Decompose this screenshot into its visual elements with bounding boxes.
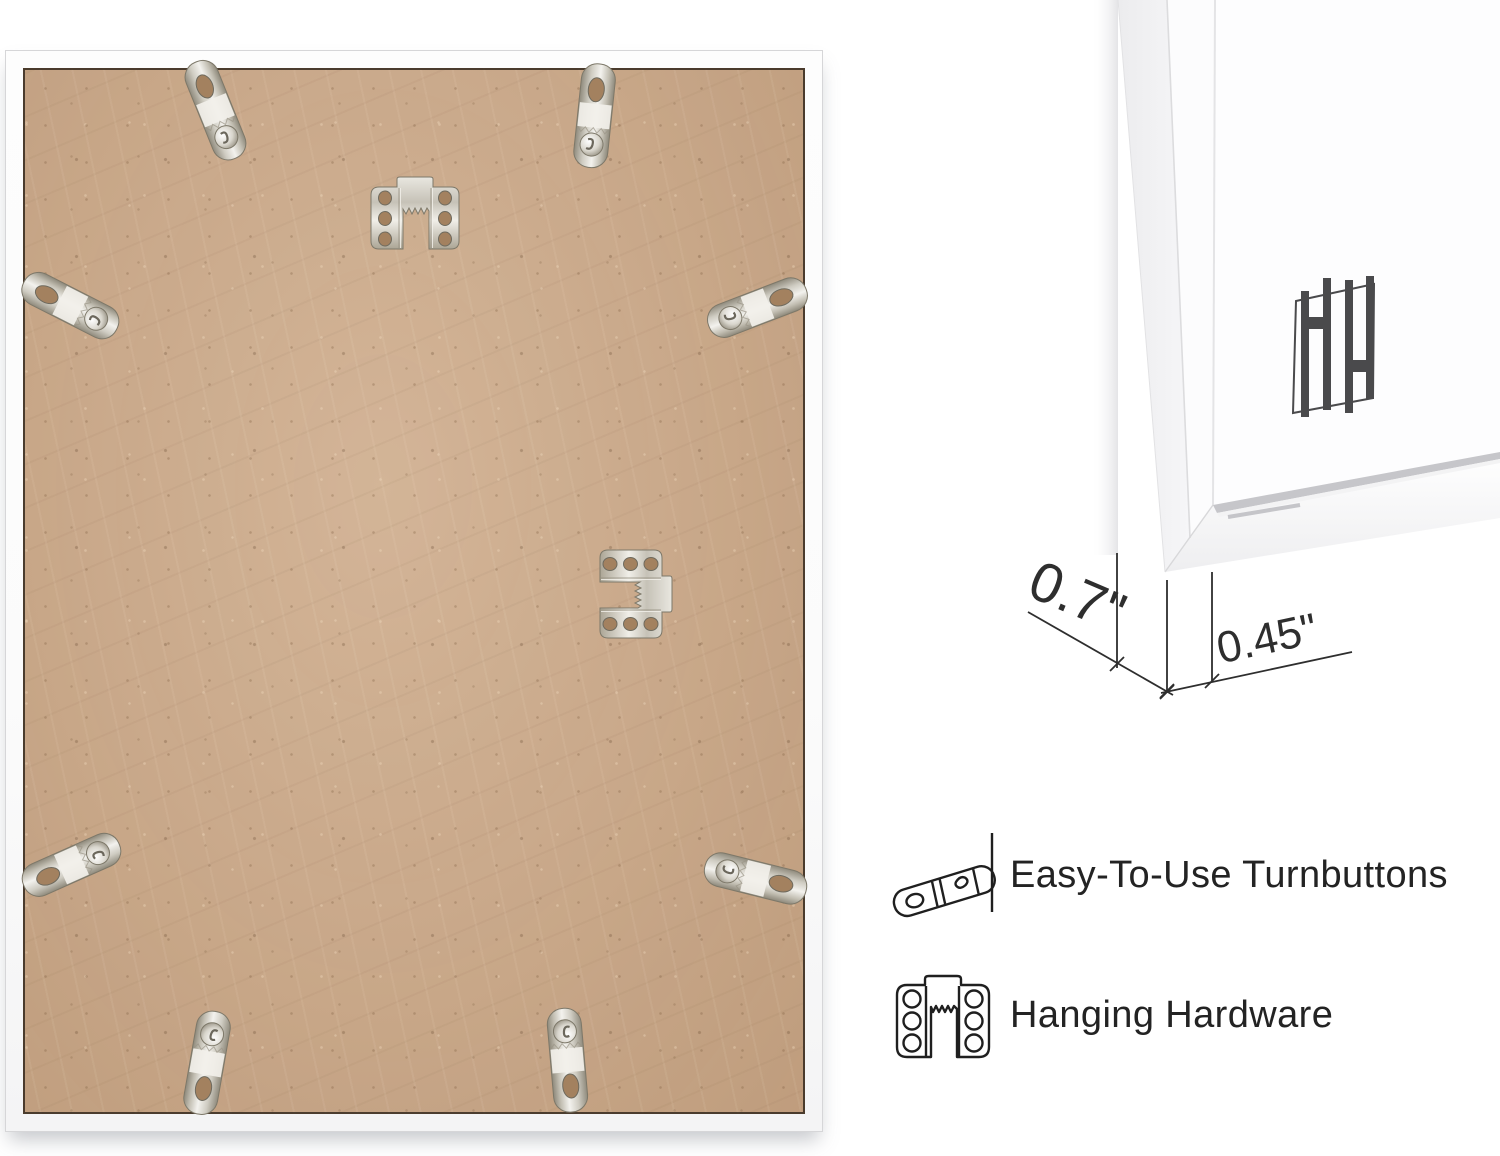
frame-back-photo (5, 50, 823, 1132)
frame-side-face (1118, 0, 1190, 572)
brand-logo-mark (1293, 276, 1374, 417)
turnbutton-icon (891, 833, 998, 919)
frame-rabbet-lip (1213, 452, 1500, 513)
frame-front-face (1167, 0, 1215, 538)
corner-detail-photo (1091, 0, 1500, 572)
width-dimension-line (1161, 652, 1352, 693)
frame-bottom-face (1165, 452, 1500, 572)
depth-dimension-label: 0.7" (1020, 548, 1135, 644)
mdf-backing-board (23, 68, 805, 1114)
frame-ambient-shadow (1091, 0, 1118, 555)
feature-label-hanging-hardware: Hanging Hardware (1010, 989, 1333, 1041)
depth-dimension-line (1028, 612, 1173, 695)
frame-mat (1213, 0, 1500, 505)
sawtooth-hanger-icon (897, 976, 989, 1057)
dimension-annotations (1028, 553, 1352, 699)
width-dimension-label: 0.45" (1212, 604, 1321, 673)
feature-label-turnbuttons: Easy-To-Use Turnbuttons (1010, 849, 1448, 901)
